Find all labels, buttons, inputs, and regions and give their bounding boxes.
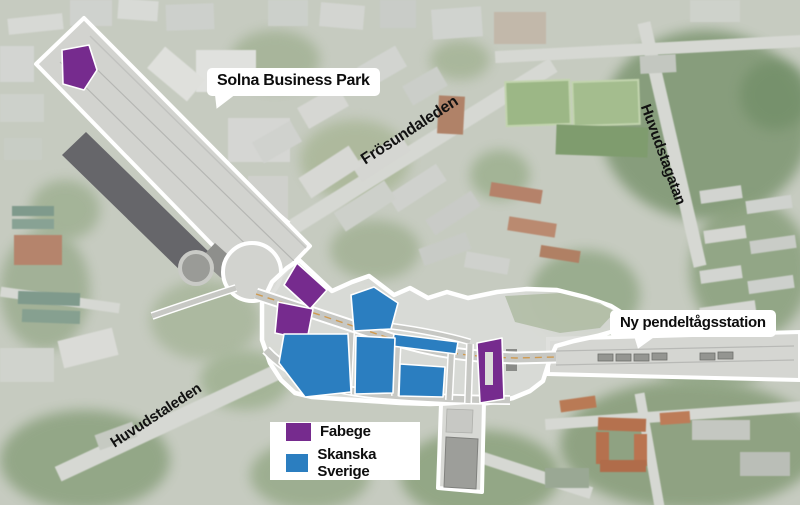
callout-ny-pendeltagsstation: Ny pendeltågsstation	[610, 310, 776, 337]
legend-label-fabege: Fabege	[320, 423, 371, 440]
train-car-icon	[700, 353, 715, 360]
legend-row-fabege: Fabege	[286, 423, 420, 441]
fabege-swatch-icon	[286, 423, 311, 441]
aerial-map: Solna Business Park Ny pendeltågsstation…	[0, 0, 800, 505]
callout-solna-label: Solna Business Park	[217, 72, 370, 89]
legend-row-skanska: Skanska Sverige	[286, 446, 420, 480]
street	[152, 288, 236, 316]
legend-label-skanska: Skanska Sverige	[317, 446, 420, 480]
callout-solna-business-park: Solna Business Park	[207, 68, 380, 96]
extension-parking	[444, 437, 478, 489]
train-car-icon	[616, 354, 631, 361]
extension-building	[446, 409, 473, 433]
legend: Fabege Skanska Sverige	[270, 422, 420, 480]
train-car-icon	[718, 352, 733, 359]
street	[468, 344, 470, 403]
train-car-icon	[598, 354, 613, 361]
callout-station-label: Ny pendeltågsstation	[620, 314, 766, 331]
parcel-courtyard	[485, 352, 493, 385]
parcel-skanska	[399, 364, 445, 397]
train-car-icon	[652, 353, 667, 360]
train-car-icon	[634, 354, 649, 361]
skanska-swatch-icon	[286, 454, 308, 472]
parcel-skanska	[355, 336, 395, 394]
round-building	[180, 252, 212, 284]
